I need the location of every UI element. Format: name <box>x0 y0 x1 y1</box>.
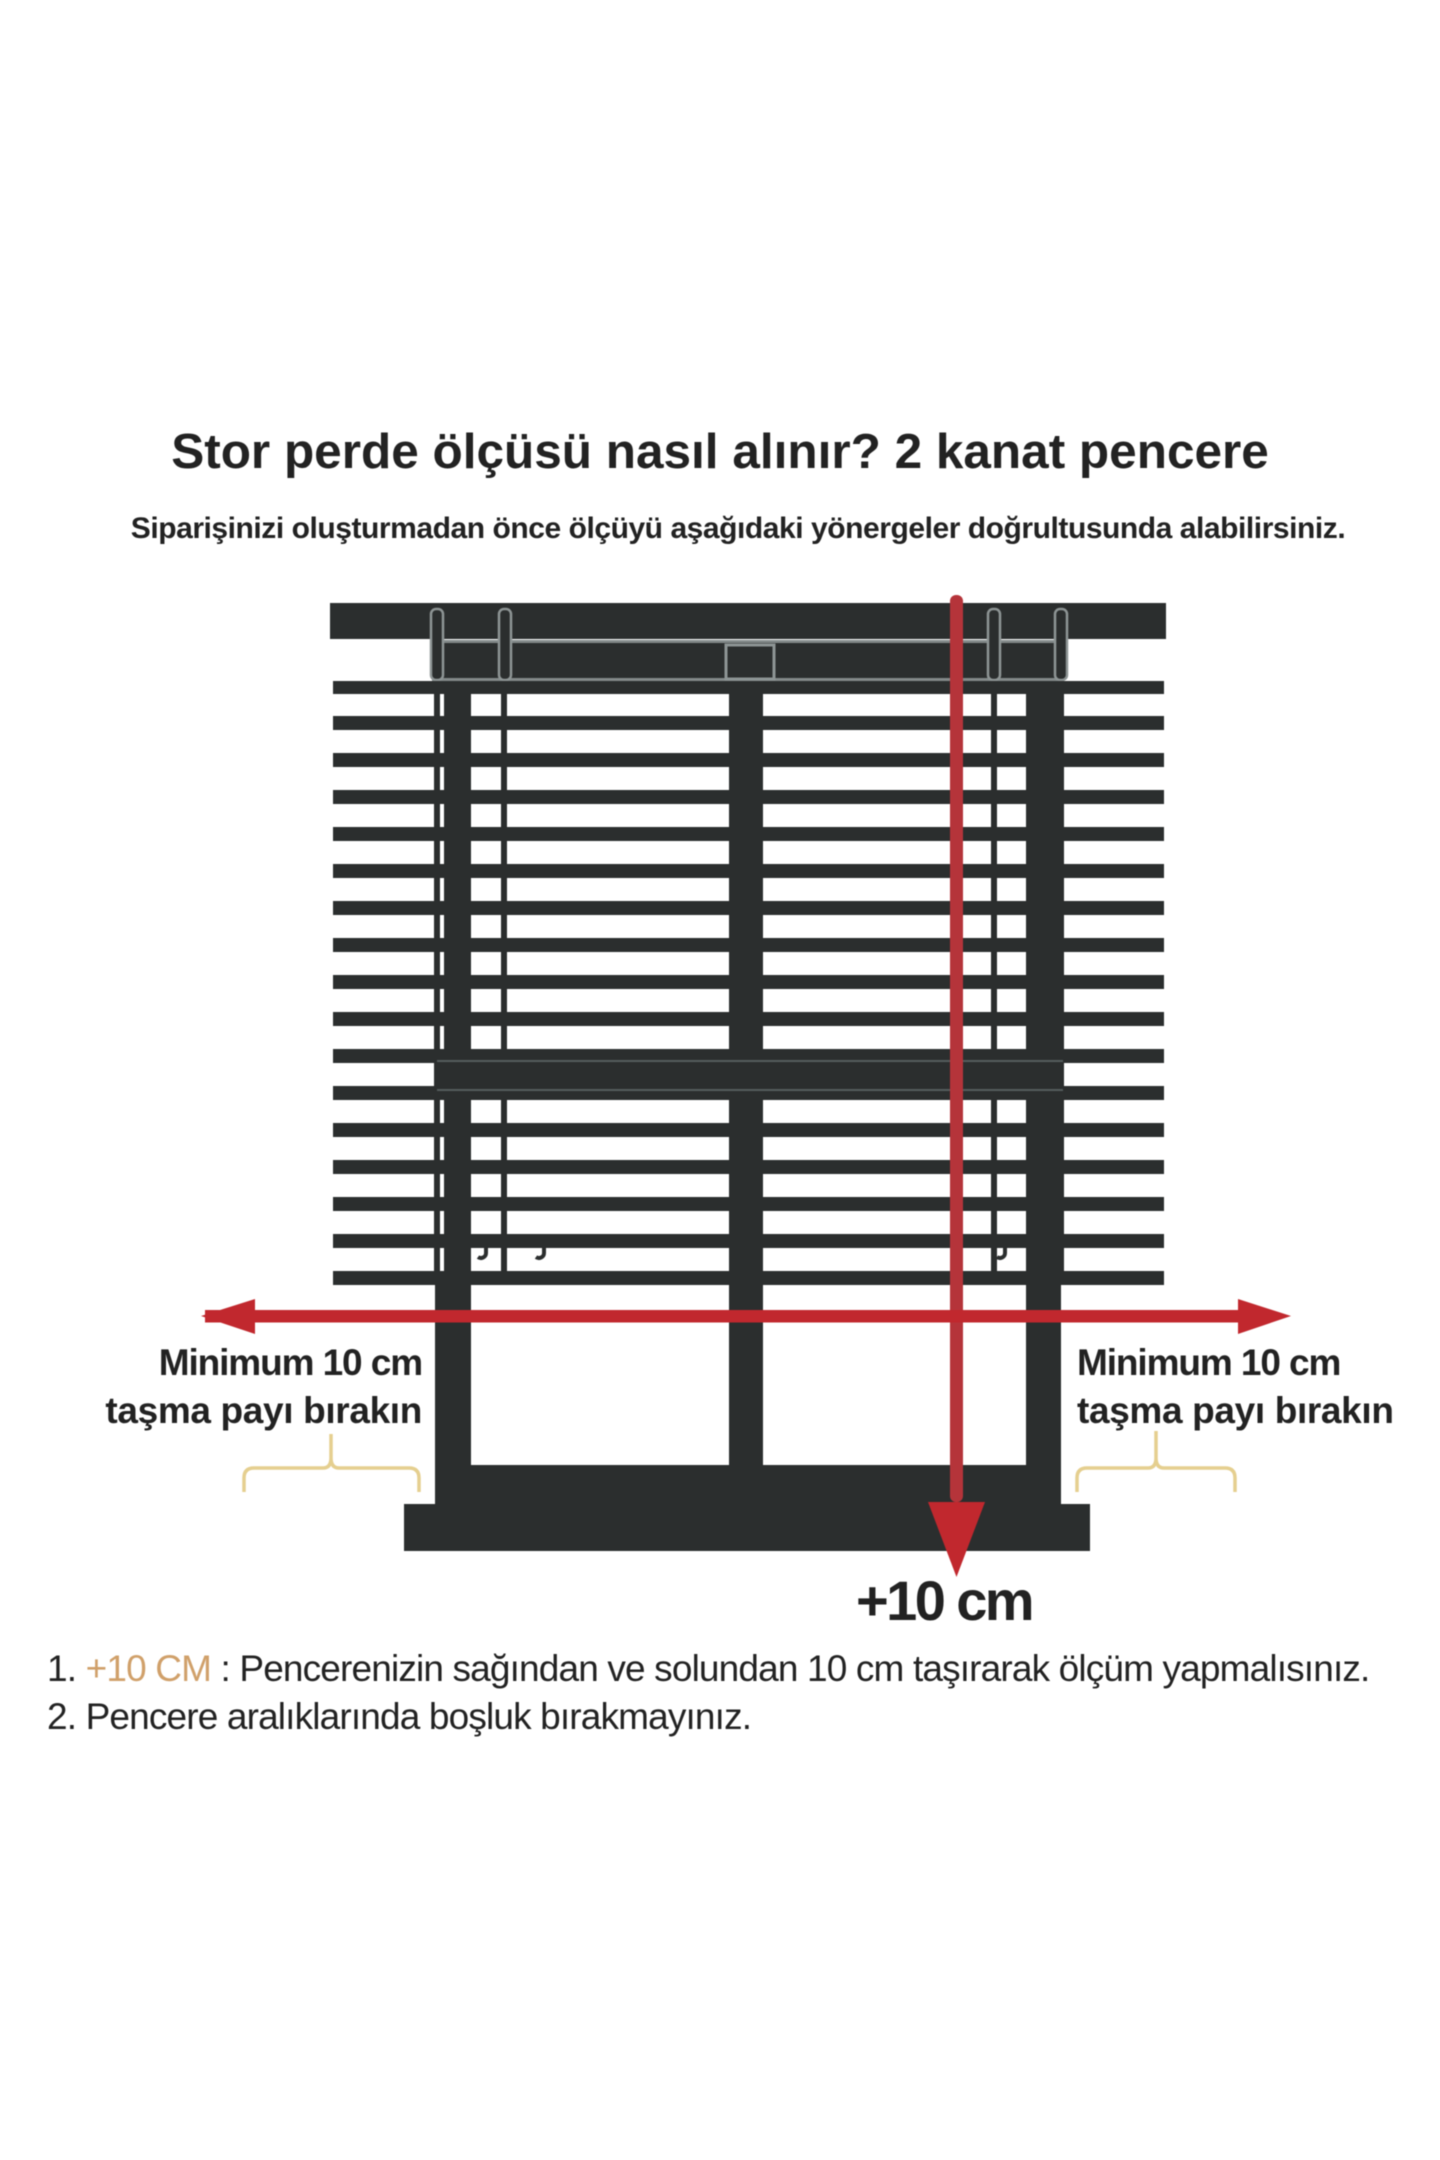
svg-text:taşma payı bırakın: taşma payı bırakın <box>1077 1390 1394 1431</box>
svg-text:+10 cm: +10 cm <box>856 1569 1032 1632</box>
svg-text:Minimum 10 cm: Minimum 10 cm <box>159 1342 422 1383</box>
svg-text:2. Pencere aralıklarında boşlu: 2. Pencere aralıklarında boşluk bırakmay… <box>47 1696 751 1737</box>
svg-text:Stor perde ölçüsü nasıl alınır: Stor perde ölçüsü nasıl alınır? 2 kanat … <box>171 424 1269 479</box>
svg-text:1. +10 CM : Pencerenizin sağın: 1. +10 CM : Pencerenizin sağından ve sol… <box>47 1648 1369 1689</box>
svg-text:Siparişinizi oluşturmadan önce: Siparişinizi oluşturmadan önce ölçüyü aş… <box>131 512 1345 545</box>
svg-text:Minimum 10 cm: Minimum 10 cm <box>1077 1342 1340 1383</box>
svg-text:taşma payı bırakın: taşma payı bırakın <box>105 1390 422 1431</box>
